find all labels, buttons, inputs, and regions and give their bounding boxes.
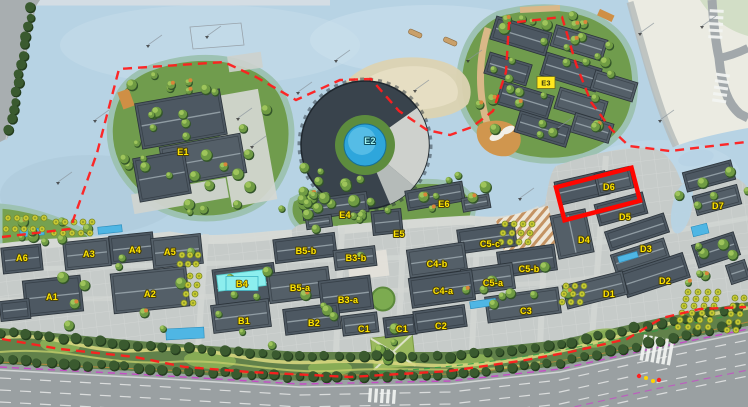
parcel-label-C2: C2 (435, 321, 447, 331)
parcel-label-C5-a: C5-a (483, 278, 504, 288)
parcel-label-C5-c: C5-c (480, 239, 500, 249)
parcel-label-text: B3-b (346, 253, 367, 263)
parcel-label-text: E2 (364, 136, 375, 146)
parcel-label-text: E1 (177, 147, 188, 157)
parcel-label-text: B4 (236, 279, 248, 289)
parcel-label-D6: D6 (603, 182, 615, 192)
parcel-label-A2: A2 (144, 289, 156, 299)
parcel-label-text: A6 (16, 253, 28, 263)
parcel-label-text: A2 (144, 289, 156, 299)
parcel-label-B5-a: B5-a (290, 283, 311, 293)
parcel-label-B3-a: B3-a (338, 295, 359, 305)
parcel-label-E6: E6 (438, 199, 449, 209)
parcel-label-C3: C3 (520, 306, 532, 316)
parcel-label-text: B3-a (338, 295, 359, 305)
parcel-label-A4: A4 (129, 245, 141, 255)
building-block (0, 298, 31, 321)
parcel-label-B3-b: B3-b (346, 253, 367, 263)
parcel-label-E1: E1 (177, 147, 188, 157)
master-plan-screenshot: E1E2E3E4E5E6A1A2A3A4A5A6B1B2B3-aB3-bB4B5… (0, 0, 748, 407)
parcel-label-D7: D7 (712, 201, 724, 211)
parcel-label-text: C3 (520, 306, 532, 316)
parcel-label-text: E4 (339, 210, 350, 220)
parcel-label-B1: B1 (238, 316, 250, 326)
parcel-label-text: E3 (541, 79, 551, 88)
parcel-label-A1: A1 (46, 292, 58, 302)
parcel-label-text: B5-b (296, 246, 317, 256)
parcel-label-D2: D2 (659, 276, 671, 286)
parcel-label-text: D3 (640, 244, 652, 254)
parcel-label-A3: A3 (83, 249, 95, 259)
parcel-label-C1-east: C1 (396, 324, 408, 334)
parcel-label-text: B5-a (290, 283, 311, 293)
parcel-label-B5-b: B5-b (296, 246, 317, 256)
parcel-label-D1: D1 (603, 289, 615, 299)
parcel-label-text: D2 (659, 276, 671, 286)
parcel-label-text: C5-c (480, 239, 500, 249)
parcel-label-text: B2 (308, 318, 320, 328)
parcel-label-text: C2 (435, 321, 447, 331)
parcel-label-text: A3 (83, 249, 95, 259)
parcel-label-text: E6 (438, 199, 449, 209)
parcel-label-text: A4 (129, 245, 141, 255)
parcel-label-text: A1 (46, 292, 58, 302)
parcel-label-text: D4 (578, 235, 590, 245)
parcel-label-C4-a: C4-a (433, 286, 454, 296)
parcel-label-D3: D3 (640, 244, 652, 254)
parcel-label-B2: B2 (308, 318, 320, 328)
water-feature (166, 327, 205, 340)
parcel-label-text: C1 (358, 324, 370, 334)
parcel-label-C4-b: C4-b (427, 259, 448, 269)
parcel-label-text: D5 (619, 212, 631, 222)
parcel-label-text: C5-b (519, 264, 540, 274)
parcel-label-text: D6 (603, 182, 615, 192)
parcel-label-B4: B4 (226, 277, 258, 291)
parcel-label-E4: E4 (339, 210, 350, 220)
parcel-label-text: B1 (238, 316, 250, 326)
parcel-label-text: D7 (712, 201, 724, 211)
parcel-label-E5: E5 (393, 229, 404, 239)
parcel-label-E3: E3 (537, 77, 555, 89)
parcel-label-C1-west: C1 (358, 324, 370, 334)
parcel-label-text: C4-b (427, 259, 448, 269)
parcel-label-text: C4-a (433, 286, 454, 296)
parcel-label-D4: D4 (578, 235, 590, 245)
parcel-label-text: C5-a (483, 278, 504, 288)
parcel-label-A5: A5 (164, 247, 176, 257)
parcel-label-text: A5 (164, 247, 176, 257)
parcel-label-text: C1 (396, 324, 408, 334)
round-lawn (372, 288, 395, 311)
parcel-label-text: E5 (393, 229, 404, 239)
parcel-label-D5: D5 (619, 212, 631, 222)
parcel-label-E2: E2 (364, 136, 375, 146)
parcel-label-text: D1 (603, 289, 615, 299)
parcel-label-A6: A6 (16, 253, 28, 263)
parcel-label-C5-b: C5-b (519, 264, 540, 274)
master-plan-map: E1E2E3E4E5E6A1A2A3A4A5A6B1B2B3-aB3-bB4B5… (0, 0, 748, 407)
